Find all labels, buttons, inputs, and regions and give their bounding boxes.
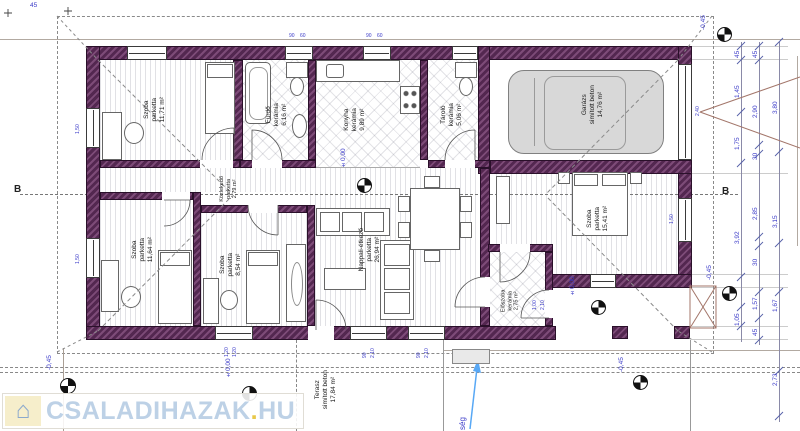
door-gap-3 [445,160,475,168]
pillow-1 [207,64,233,78]
door-gap-front [545,290,553,318]
win-tag-6b: 1,20 [233,341,238,357]
wall-porch-north [545,274,692,288]
desk-3 [203,278,219,324]
floor-plan: Szobaparketta11,71 m² Fürdőkerámia6,16 m… [0,0,800,431]
dim-r1-a: 45 [735,44,742,58]
window-north-2 [285,46,313,60]
porch-pillar-1 [612,326,628,339]
pillow-3 [248,252,278,266]
section-marker-right: B [722,186,729,197]
dim-r1-e: 1,05 [735,300,742,326]
window-north-1 [127,46,167,60]
dining-chair-3 [460,196,472,212]
chair-3 [220,290,238,310]
wall-int-2 [308,60,316,160]
chaise-cushion-3 [384,292,410,314]
note-box [452,349,490,364]
dim-r3-b: 3,15 [773,202,780,228]
level-zero-kitchen: ±0,00 [341,140,348,168]
dim-r3-d: 2,73 [773,360,780,386]
dining-chair-1 [398,196,410,212]
win-tag-4: 1,50 [76,246,81,264]
orientation-note-fragment: ség [459,406,467,430]
garage-door [678,64,692,160]
wall-int-3 [420,60,428,160]
dining-chair-2 [398,222,410,238]
orientation-arrow [470,359,481,429]
pillow-4 [574,174,598,186]
win-tag-6a: 1,20 [225,341,230,357]
door-gap-4 [162,192,190,200]
window-west-2 [86,238,100,278]
win-tag-1a: 90 [289,34,295,39]
level-symbol-1 [717,27,732,42]
wardrobe-master [496,176,510,224]
watermark: ⌂ CSALADIHAZAK.HU [2,393,304,429]
dim-r1-c: 1,75 [735,124,742,150]
level-symbol-6 [357,178,372,193]
toilet-bowl-1 [290,77,304,96]
sofa-cushion-3 [364,212,384,232]
front-door-tag-b: 2,10 [541,294,546,310]
dining-chair-5 [424,176,440,188]
dim-r2-e: 30 [753,252,760,266]
kitchen-sink [326,64,344,78]
house-icon: ⌂ [5,396,41,426]
chaise-cushion-1 [384,244,410,266]
car-windshield [534,78,535,146]
door-tag-2b: 2,10 [425,342,430,358]
coffee-table [324,268,366,290]
dining-chair-6 [424,250,440,262]
wall-int-10 [307,205,315,326]
bathtub-inner [249,67,268,120]
level-symbol-2 [722,286,737,301]
car-cabin [544,76,626,150]
level-minus-e: -0,45 [707,252,714,280]
chaise-cushion-2 [384,268,410,290]
property-line-right [797,56,798,246]
dining-table [410,188,460,250]
dim-r2-d: 2,85 [753,194,760,220]
washbasin [292,114,307,138]
terrace-right-edge [443,340,444,431]
chair-1 [124,122,144,144]
pillow-5 [602,174,626,186]
dim-r1-d: 3,92 [735,218,742,244]
porch-pillar-2 [674,326,690,339]
porch-right-edge [690,340,691,431]
door-gap-7 [480,277,490,307]
front-door-tag-a: 1,00 [533,294,538,310]
level-minus-se: -0,45 [619,344,626,372]
door-tag-1b: 2,10 [371,342,376,358]
window-porch [590,274,616,288]
stove [400,86,420,114]
ground-line-a [0,367,800,368]
level-symbol-4 [60,378,76,394]
nightstand-2 [630,172,642,184]
dim-r2-a: 45 [753,44,760,58]
terrace-door-2 [408,326,445,340]
door-gap-6 [500,244,530,252]
dim-r3-a: 3,80 [773,88,780,114]
door-tag-2a: 90 [417,342,422,358]
desk-1 [102,112,122,160]
watermark-text: CSALADIHAZAK.HU [46,397,295,426]
level-zero-porch: ±0,00 [570,268,577,296]
toilet-bowl-2 [459,77,473,96]
nightstand-1 [558,172,570,184]
ground-line-b [0,372,800,373]
dim-r1-b: 1,45 [735,72,742,98]
desk-2 [101,260,119,312]
level-minus-ne: -0,45 [701,2,708,30]
win-tag-1b: 60 [300,34,306,39]
door-gap-terrace-1 [308,326,334,340]
dim-r2-f: 1,57 [753,284,760,310]
door-tag-1a: 90 [363,342,368,358]
dim-top-left: 45 [30,3,37,10]
section-marker-left: B [14,184,21,195]
wall-west [86,46,100,340]
sofa-cushion-1 [320,212,340,232]
door-gap-1 [200,160,233,168]
door-gap-2 [252,160,282,168]
dim-r3-c: 1,67 [773,286,780,312]
win-tag-3: 1,50 [76,116,81,134]
win-tag-2b: 60 [377,34,383,39]
terrace-door-1 [350,326,387,340]
dim-r2-g: 45 [753,322,760,336]
win-tag-2a: 90 [366,34,372,39]
dining-chair-4 [460,222,472,238]
dim-r2-b: 2,90 [753,92,760,118]
pillow-2 [160,252,190,266]
toilet-tank-1 [286,62,308,78]
window-north-4 [452,46,478,60]
level-symbol-5 [591,300,606,315]
door-gap-5 [248,205,278,213]
window-east-master [678,198,692,242]
level-symbol-3 [633,375,648,390]
toilet-tank-2 [455,62,477,78]
window-north-3 [363,46,391,60]
garage-door-tag: 2,40 [696,98,701,116]
window-west-1 [86,108,100,148]
wall-garage-west [478,46,490,174]
window-south-1 [215,326,253,340]
win-tag-5: 1,50 [670,206,675,224]
wardrobe-mirror [291,262,303,306]
dim-r2-c: 30 [753,146,760,160]
chair-2 [121,286,141,308]
sofa-cushion-2 [342,212,362,232]
level-minus-sw: -0,45 [47,342,54,370]
wall-int-8 [193,192,201,326]
